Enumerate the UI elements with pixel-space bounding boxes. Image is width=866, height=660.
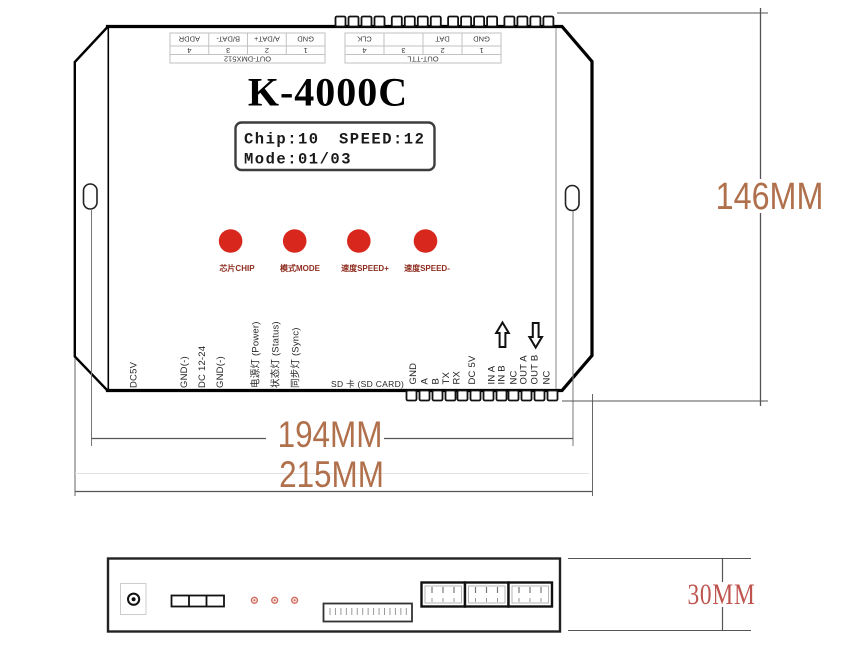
svg-text:GND(-): GND(-) (215, 356, 226, 388)
svg-text:同步灯 (Sync): 同步灯 (Sync) (291, 327, 302, 388)
svg-text:OUT A: OUT A (519, 355, 530, 385)
svg-text:CLK: CLK (357, 35, 372, 44)
svg-text:DAT: DAT (435, 35, 450, 44)
svg-text:2: 2 (440, 46, 444, 55)
svg-text:1: 1 (479, 46, 483, 55)
svg-text:4: 4 (187, 46, 191, 55)
svg-text:2: 2 (265, 46, 269, 55)
svg-text:1: 1 (304, 46, 308, 55)
svg-text:A: A (420, 378, 431, 385)
svg-text:146MM: 146MM (716, 176, 824, 218)
svg-text:Chip:10: Chip:10 (244, 131, 320, 149)
svg-text:Mode:01/03: Mode:01/03 (244, 151, 352, 169)
svg-text:电源灯 (Power): 电源灯 (Power) (250, 321, 262, 388)
svg-text:3: 3 (226, 46, 230, 55)
svg-text:RX: RX (452, 370, 463, 384)
svg-text:A/DAT+: A/DAT+ (253, 35, 280, 44)
svg-text:4: 4 (362, 46, 366, 55)
svg-text:TX: TX (441, 371, 452, 384)
svg-text:芯片CHIP: 芯片CHIP (219, 263, 255, 273)
svg-text:DC5V: DC5V (129, 361, 140, 388)
svg-text:OUT-TTL: OUT-TTL (407, 55, 438, 64)
svg-text:B: B (431, 378, 442, 385)
svg-text:模式MODE: 模式MODE (280, 263, 321, 273)
svg-text:3: 3 (401, 46, 405, 55)
svg-text:速度SPEED+: 速度SPEED+ (341, 263, 389, 273)
svg-text:SPEED:12: SPEED:12 (339, 131, 425, 149)
svg-text:30MM: 30MM (687, 577, 755, 610)
svg-text:DC 12-24: DC 12-24 (197, 346, 208, 388)
svg-text:IN B: IN B (497, 365, 508, 384)
svg-text:GND: GND (473, 35, 490, 44)
svg-text:GND(-): GND(-) (179, 356, 190, 388)
svg-text:194MM: 194MM (278, 415, 383, 456)
svg-text:ADDR: ADDR (178, 35, 200, 44)
svg-text:B/DAT-: B/DAT- (216, 35, 240, 44)
svg-text:SD 卡 (SD CARD): SD 卡 (SD CARD) (331, 379, 404, 389)
svg-text:OUT B: OUT B (530, 355, 541, 385)
svg-text:状态灯 (Status): 状态灯 (Status) (270, 321, 282, 388)
svg-text:GND: GND (408, 363, 419, 385)
svg-text:NC: NC (542, 370, 553, 384)
svg-text:DC 5V: DC 5V (467, 355, 478, 384)
svg-text:GND: GND (297, 35, 314, 44)
svg-text:215MM: 215MM (279, 455, 384, 496)
svg-text:K-4000C: K-4000C (248, 70, 408, 115)
svg-text:速度SPEED-: 速度SPEED- (404, 263, 450, 273)
